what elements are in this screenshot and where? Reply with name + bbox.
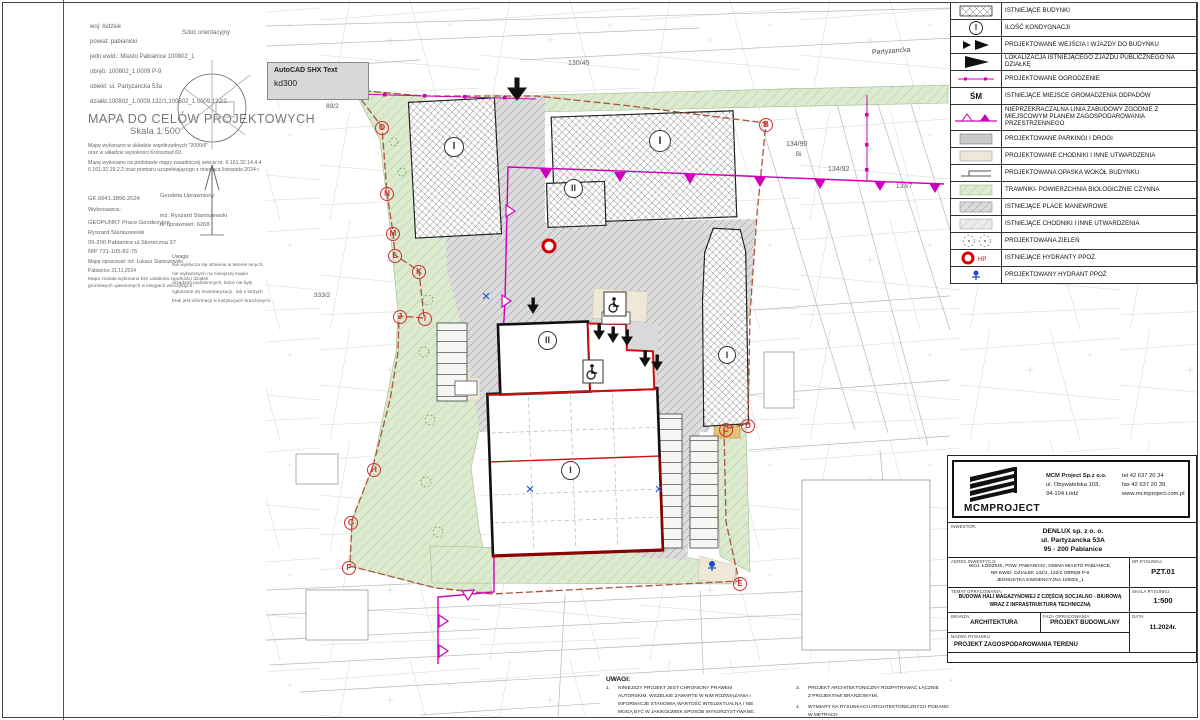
legend-item-waste: ŚM ISTNIEJĄCE MIEJSCE GROMADZENIA ODPADÓ… bbox=[951, 88, 1196, 105]
boundary-point-n: N bbox=[380, 187, 394, 201]
storeys-symbol: I bbox=[969, 21, 983, 35]
public-exit-icon bbox=[959, 55, 993, 69]
uwaga-line: zgłoszone do inwentaryzacji , lub o któr… bbox=[172, 290, 263, 295]
storeys-b2: I bbox=[649, 130, 671, 152]
phase-value: PROJEKT BUDOWLANY bbox=[1050, 620, 1120, 627]
legend-item-proposed-sidewalks: PROJEKTOWANE CHODNIKI I INNE UTWARDZENIA bbox=[951, 148, 1196, 165]
storeys-b1: I bbox=[444, 137, 464, 157]
address-line: JEDNOSTKA EWIDENCYJNA 100802_1 bbox=[996, 578, 1083, 584]
legend-item-band: PROJEKTOWANA OPASKA WOKÓŁ BUDYNKU bbox=[951, 165, 1196, 182]
greenery-icon bbox=[959, 234, 993, 248]
map-info-row: woj: łódzkie bbox=[90, 24, 121, 30]
uwaga-line: brak jest informacji w instytucjach bran… bbox=[172, 299, 271, 304]
map-info-panel: woj: łódzkie powiat: pabianicki jedn.ewi… bbox=[0, 0, 266, 720]
uwaga-line: urządzeń podziemnych, które nie były bbox=[172, 281, 252, 286]
legend: ISTNIEJĄCE BUDYNKI I PROJEKTOWANE WEJŚCI… bbox=[950, 2, 1197, 284]
contractor-name: GEOPUNKT Prace Geodezyjne bbox=[88, 220, 170, 226]
waste-symbol: ŚM bbox=[970, 92, 982, 101]
contractor-nip: NIP 731-105-82-75 bbox=[88, 249, 137, 255]
storeys-b4: I bbox=[718, 346, 736, 364]
boundary-point-d: D bbox=[741, 419, 755, 433]
date-label: DATA: bbox=[1132, 614, 1145, 619]
legend-item-building-limit: NIEPRZEKRACZALNA LINIA ZABUDOWY ZGODNIE … bbox=[951, 105, 1196, 131]
legend-item-existing-buildings: ISTNIEJĄCE BUDYNKI bbox=[951, 3, 1196, 20]
legend-item-entrances: PROJEKTOWANE WEJŚCIA I WJAZDY DO BUDYNKU bbox=[951, 37, 1196, 54]
legend-item-public-exit: LOKALIZACJA ISTNIEJĄCEGO ZJAZDU PUBLICZN… bbox=[951, 54, 1196, 71]
autocad-shx-popup[interactable]: AutoCAD SHX Text kd300 bbox=[267, 62, 369, 100]
boundary-point-h: H bbox=[367, 463, 381, 477]
company-web: www.mcmproject.com.pl bbox=[1122, 490, 1185, 499]
title-block: MCMPROJECT MCM Project Sp.z o.o. ul. Oby… bbox=[947, 455, 1197, 663]
date-value: 11.2024r. bbox=[1149, 624, 1176, 631]
company-box: MCMPROJECT MCM Project Sp.z o.o. ul. Oby… bbox=[952, 460, 1190, 518]
address-line: WOJ. ŁÓDZKIE, POW. PABIANICKI, GMINA MIA… bbox=[969, 564, 1112, 570]
entrance-arrows-icon bbox=[959, 39, 993, 51]
subject-line: BUDOWA HALI MAGAZYNOWEJ Z CZĘŚCIĄ SOCJAL… bbox=[959, 595, 1122, 601]
note-1-line: INFORMACJE STANOWIĄ WARTOŚĆ INTELEKTUALN… bbox=[618, 702, 753, 707]
boundary-point-j: J bbox=[393, 310, 407, 324]
investor-street: ul. Partyzancka 53A bbox=[1041, 537, 1105, 545]
legend-item-maneuvering: ISTNIEJĄCE PLACE MANEWROWE bbox=[951, 199, 1196, 216]
storeys-b3: II bbox=[564, 179, 583, 198]
note-1-line: NINIEJSZY PROJEKT JEST CHRONIONY PRAWEM bbox=[618, 686, 732, 691]
investor-label: INWESTOR: bbox=[951, 524, 976, 529]
note-1-num: 1. bbox=[606, 686, 610, 691]
boundary-point-c: C bbox=[719, 423, 733, 437]
boundary-point-i: I bbox=[418, 312, 432, 326]
legend-item-lawns: TRAWNIKI- POWIERZCHNIA BIOLOGICZNIE CZYN… bbox=[951, 182, 1196, 199]
contractor-person: Ryszard Staniszewski bbox=[88, 230, 144, 236]
orientation-sketch-label: Szkic orientacyjny bbox=[182, 30, 230, 36]
investor-city: 95 - 200 Pabianice bbox=[1044, 546, 1103, 554]
legend-item-proposed-parking: PROJEKTOWANE PARKINGI I DROGI bbox=[951, 131, 1196, 148]
map-info-row: obręb: 100802_1.0009 P-9 bbox=[90, 69, 161, 75]
notes-label: UWAGI: bbox=[606, 676, 630, 683]
note-3-num: 3. bbox=[796, 686, 800, 691]
note-1-line: MOGĄ BYĆ W JAKIKOLWIEK SPOSÓB WYKORZYSTY… bbox=[618, 710, 755, 715]
boundary-point-l: L bbox=[388, 249, 402, 263]
branch-label: BRANŻA: bbox=[951, 614, 971, 619]
popup-value: kd300 bbox=[274, 78, 362, 88]
boundary-point-e: E bbox=[733, 577, 747, 591]
waste-point-box bbox=[455, 381, 477, 395]
boundary-point-k: K bbox=[412, 265, 426, 279]
boundary-point-f: F bbox=[342, 561, 356, 575]
case-number: GK.6641.3856.2024 bbox=[88, 196, 140, 202]
contractor-label: Wykonawca: bbox=[88, 207, 121, 213]
mcm-logo bbox=[962, 465, 1034, 503]
legend-item-storeys: I PROJEKTOWANE WEJŚCIA I WJAZDY DO BUDYN… bbox=[951, 20, 1196, 37]
uwaga-label: Uwaga: bbox=[172, 254, 190, 260]
boundary-point-g: G bbox=[344, 516, 358, 530]
logo-text: MCMPROJECT bbox=[964, 503, 1040, 514]
branch-value: ARCHITEKTURA bbox=[970, 620, 1018, 627]
scale-label: SKALA RYSUNKU: bbox=[1132, 589, 1171, 594]
note-4-line: W METRACH bbox=[808, 713, 838, 718]
note-4-num: 4. bbox=[796, 705, 800, 710]
legend-item-fence: PROJEKTOWANE OGRODZENIE bbox=[951, 71, 1196, 88]
uwaga-line: nie wykazanych na niniejszej mapie bbox=[172, 272, 248, 277]
prepared-place: Pabianice 21.11.2024 bbox=[88, 268, 136, 274]
band-icon bbox=[959, 167, 993, 179]
drawing-name: PROJEKT ZAGOSPODAROWANIA TERENU bbox=[954, 642, 1078, 648]
company-addr2: 94-104 Łódź bbox=[1046, 490, 1107, 499]
building-limit-icon bbox=[954, 112, 998, 124]
fence-icon bbox=[956, 75, 996, 83]
map-info-row: powiat: pabianicki bbox=[90, 39, 137, 45]
storeys-hall: I bbox=[561, 461, 580, 480]
legend-item-existing-hydrants: HP ISTNIEJĄCE HYDRANTY PPOŻ. bbox=[951, 250, 1196, 267]
proposed-hydrant-icon bbox=[969, 268, 983, 282]
scale-value: 1:500 bbox=[1153, 597, 1172, 606]
subject-line: WRAZ Z INFRASTRUKTURĄ TECHNICZNĄ bbox=[989, 603, 1090, 609]
existing-hydrant-icon: HP bbox=[956, 251, 996, 265]
orientation-sketch bbox=[160, 40, 266, 240]
uwaga-line: Nie wyklucza się istnienia w terenie inn… bbox=[172, 263, 264, 268]
map-info-row: obiekt: ul. Partyzancka 53a bbox=[90, 84, 162, 90]
phase-label: FAZA OPRACOWANIA: bbox=[1043, 614, 1091, 619]
notes-block: UWAGI: 1. NINIEJSZY PROJEKT JEST CHRONIO… bbox=[600, 674, 950, 720]
drawing-no: PZT.01 bbox=[1151, 568, 1175, 577]
note-1-line: AUTORSKIM. WSZELKIE ZAWARTE W NIM ROZWIĄ… bbox=[618, 694, 751, 699]
drawing-no-label: NR RYSUNKU: bbox=[1132, 559, 1163, 564]
investor-name: DENLUX sp. z o. o. bbox=[1043, 528, 1104, 536]
company-name: MCM Project Sp.z o.o. bbox=[1046, 472, 1107, 481]
boundary-point-b: B bbox=[759, 118, 773, 132]
note-3-line: PROJEKT ARCHITEKTONICZNY ROZPATRYWAĆ ŁĄC… bbox=[808, 686, 939, 691]
proposed-building bbox=[484, 319, 664, 556]
popup-title: AutoCAD SHX Text bbox=[274, 67, 362, 74]
site-plan-sheet: A B C D E F G H I J K L M N O I IST. HAL… bbox=[0, 0, 1200, 720]
existing-hydrant-symbol bbox=[543, 240, 555, 252]
company-tel: tel 42 637 20 34 bbox=[1122, 472, 1185, 481]
note-3-line: Z PROJEKTAMI BRANŻOWYMI. bbox=[808, 694, 878, 699]
address-line: NR EWID. DZIAŁEK 132/1, 132/2 OBRĘB P-9 bbox=[991, 571, 1089, 577]
storeys-office: II bbox=[538, 331, 557, 350]
contractor-address: 95-200 Pabianice ul.Słoneczna 37 bbox=[88, 240, 176, 246]
prepared-by: Mapę opracował: inż. Łukasz Staniszewski bbox=[88, 259, 183, 265]
boundary-point-o: O bbox=[375, 121, 389, 135]
boundary-point-m: M bbox=[386, 227, 400, 241]
company-addr1: ul. Obywatelska 103, bbox=[1046, 481, 1107, 490]
legend-item-greenery: PROJEKTOWANA ZIELEŃ bbox=[951, 233, 1196, 250]
note-4-line: WYMIARY NA RYSUNKACH ARCHITEKTONICZNYCH … bbox=[808, 705, 949, 710]
svg-text:HP: HP bbox=[978, 257, 986, 263]
legend-item-proposed-hydrant: PROJEKTOWANY HYDRANT PPOŻ bbox=[951, 267, 1196, 283]
mcm-logo-text: MCMPROJECT bbox=[964, 503, 1040, 514]
drawing-name-label: NAZWA RYSUNKU: bbox=[951, 634, 991, 639]
legend-item-existing-sidewalks: ISTNIEJĄCE CHODNIKI I INNE UTWARDZENIA bbox=[951, 216, 1196, 233]
company-fax: fax 42 637 20 39, bbox=[1122, 481, 1185, 490]
